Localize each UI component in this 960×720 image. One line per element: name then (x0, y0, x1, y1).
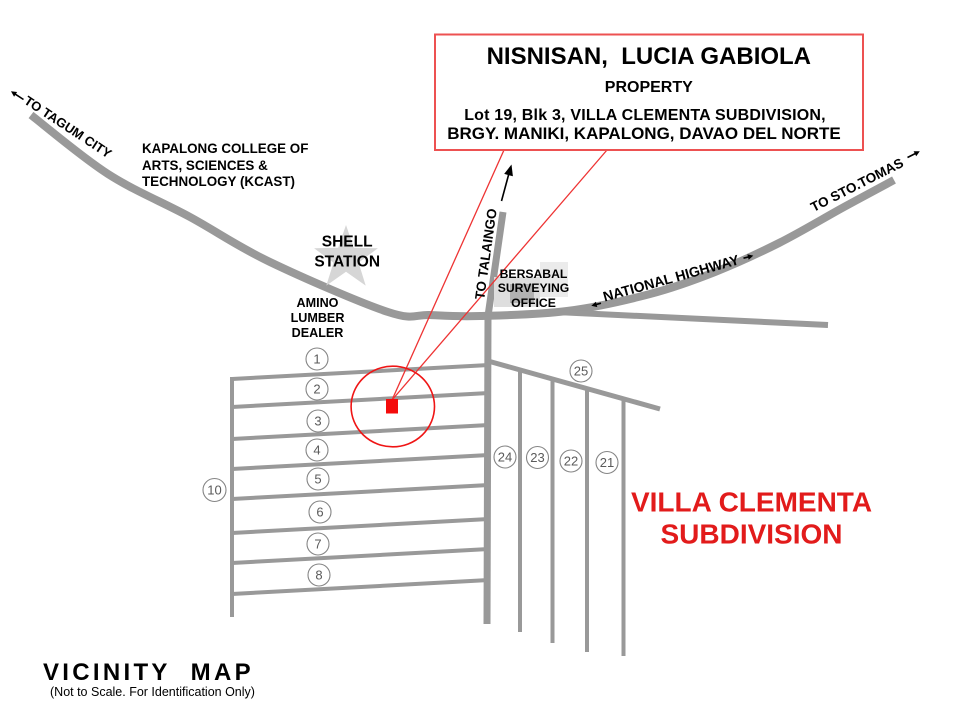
svg-text:5: 5 (314, 472, 321, 487)
svg-text:1: 1 (313, 352, 320, 367)
svg-text:25: 25 (574, 364, 588, 379)
svg-text:10: 10 (207, 483, 221, 498)
svg-text:22: 22 (564, 454, 578, 469)
svg-text:21: 21 (600, 455, 614, 470)
svg-text:24: 24 (498, 450, 512, 465)
svg-text:6: 6 (316, 505, 323, 520)
svg-text:8: 8 (315, 568, 322, 583)
svg-text:7: 7 (314, 537, 321, 552)
svg-text:3: 3 (314, 414, 321, 429)
svg-text:2: 2 (313, 382, 320, 397)
svg-text:23: 23 (530, 450, 544, 465)
svg-text:4: 4 (313, 443, 320, 458)
